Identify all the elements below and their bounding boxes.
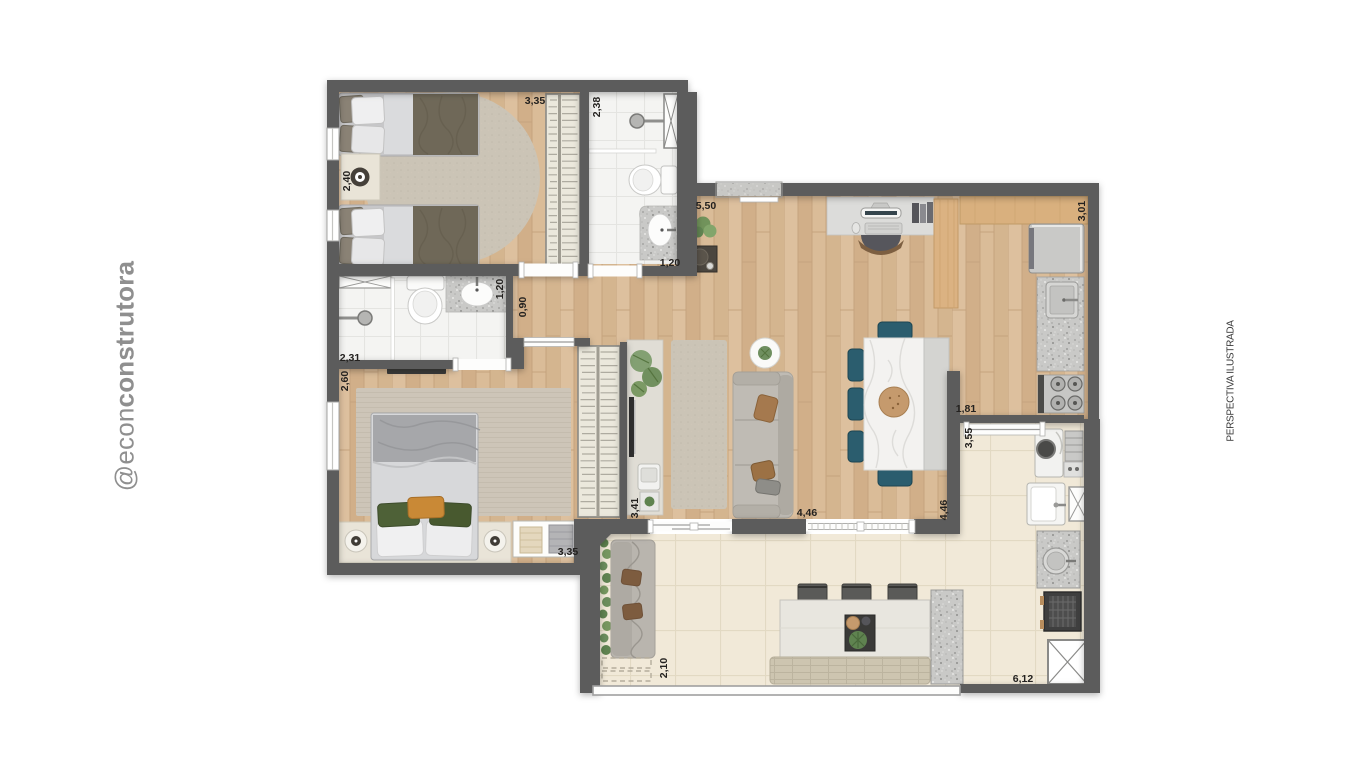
svg-text:0,90: 0,90 <box>517 297 529 318</box>
svg-text:1,20: 1,20 <box>494 279 506 300</box>
svg-text:4,46: 4,46 <box>938 500 950 521</box>
svg-text:2,40: 2,40 <box>341 171 353 192</box>
svg-text:3,35: 3,35 <box>558 546 579 558</box>
svg-text:2,60: 2,60 <box>339 371 351 392</box>
svg-text:2,10: 2,10 <box>658 658 670 679</box>
svg-text:6,12: 6,12 <box>1013 673 1034 685</box>
svg-text:3,35: 3,35 <box>525 95 546 107</box>
svg-text:5,50: 5,50 <box>696 200 717 212</box>
svg-text:3,01: 3,01 <box>1076 201 1088 222</box>
svg-text:1,81: 1,81 <box>956 403 977 415</box>
svg-text:3,55: 3,55 <box>963 428 975 449</box>
svg-text:1,20: 1,20 <box>660 257 681 269</box>
svg-text:4,46: 4,46 <box>797 507 818 519</box>
svg-text:2,31: 2,31 <box>340 352 361 364</box>
svg-text:3,41: 3,41 <box>629 498 641 519</box>
svg-text:2,38: 2,38 <box>591 97 603 118</box>
